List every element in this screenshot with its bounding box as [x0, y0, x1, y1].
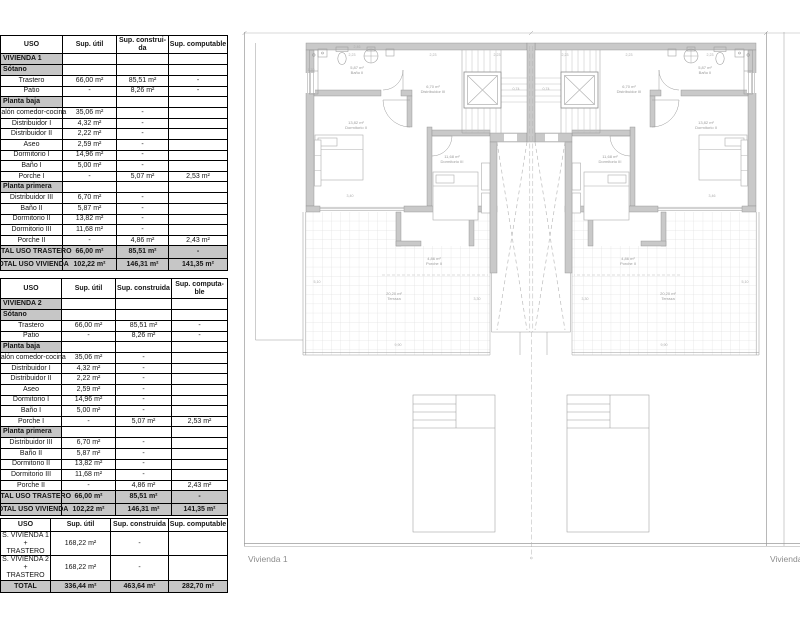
- table-row: Dormitorio III11,68 m²-: [1, 225, 228, 236]
- pool-vivienda-1: [413, 395, 495, 532]
- table-cell: [172, 459, 228, 470]
- table-cell: [117, 97, 169, 108]
- table-cell: 5,07 m²: [116, 416, 172, 427]
- table-cell: 85,51 m²: [116, 491, 172, 504]
- table-cell: [169, 161, 228, 172]
- table-cell: Patio: [1, 86, 63, 97]
- table-cell: [172, 310, 228, 321]
- table-cell: [169, 203, 228, 214]
- table-cell: [172, 374, 228, 385]
- table-cell: [62, 299, 116, 310]
- table-cell: Salón comedor-cocina: [1, 353, 62, 364]
- room-label: Baño II: [351, 70, 364, 75]
- column-header: Sup. computa- ble: [172, 279, 228, 299]
- table-cell: 6,70 m²: [62, 438, 116, 449]
- table-row: TOTAL USO VIVIENDA102,22 m²146,31 m²141,…: [1, 258, 228, 271]
- table-cell: [172, 395, 228, 406]
- table-cell: Distribuidor III: [1, 193, 63, 204]
- table-row: TOTAL USO VIVIENDA102,22 m²146,31 m²141,…: [1, 503, 228, 516]
- table-cell: 66,00 m²: [62, 321, 116, 332]
- table-cell: Dormitorio III: [1, 225, 63, 236]
- dimension-label: 0,74: [543, 87, 550, 91]
- table-row: Dormitorio II13,82 m²-: [1, 459, 228, 470]
- table-cell: [63, 182, 117, 193]
- table-cell: 5,07 m²: [117, 171, 169, 182]
- table-cell: Baño I: [1, 406, 62, 417]
- wardrobe: [482, 163, 491, 190]
- table-cell: -: [111, 556, 169, 580]
- table-header-row: USOSup. útilSup. construi- daSup. comput…: [1, 36, 228, 54]
- table-row: Porche II-4,86 m²2,43 m²: [1, 480, 228, 491]
- dimension-label: 5,10: [314, 280, 321, 284]
- table-cell: VIVIENDA 2: [1, 299, 62, 310]
- table-cell: 102,22 m²: [62, 503, 116, 516]
- table-cell: 8,26 m²: [117, 86, 169, 97]
- table-cell: [172, 470, 228, 481]
- table-cell: -: [169, 246, 228, 259]
- table-cell: [172, 353, 228, 364]
- table-cell: 11,68 m²: [63, 225, 117, 236]
- table-cell: -: [62, 416, 116, 427]
- table-cell: Baño I: [1, 161, 63, 172]
- table-cell: 282,70 m²: [169, 580, 228, 593]
- table-cell: 4,32 m²: [62, 363, 116, 374]
- dimension-label: 2,23: [494, 53, 501, 57]
- table-row: Trastero66,00 m²85,51 m²-: [1, 321, 228, 332]
- dimension-label: 2,23: [349, 53, 356, 57]
- table-cell: 2,43 m²: [169, 235, 228, 246]
- room-label: Terraza: [661, 296, 675, 301]
- table-cell: [169, 54, 228, 65]
- dimension-label: 2,23: [562, 53, 569, 57]
- doors: [383, 70, 452, 156]
- surfaces-table-totals: USOSup. útilSup. construidaSup. computab…: [0, 518, 228, 593]
- table-cell: 6,70 m²: [63, 193, 117, 204]
- table-cell: [172, 342, 228, 353]
- table-cell: Dormitorio III: [1, 470, 62, 481]
- central-void: [490, 43, 572, 559]
- dimension-label: 3,30: [582, 297, 589, 301]
- table-cell: Dormitorio II: [1, 214, 63, 225]
- table-cell: 5,00 m²: [62, 406, 116, 417]
- table-cell: 102,22 m²: [63, 258, 117, 271]
- table-cell: 85,51 m²: [117, 76, 169, 87]
- table-row: Aseo2,59 m²-: [1, 139, 228, 150]
- table-cell: 2,59 m²: [63, 139, 117, 150]
- table-row: Dormitorio I14,96 m²-: [1, 150, 228, 161]
- dimension-label: 2,23: [626, 53, 633, 57]
- table-row: Distribuidor I4,32 m²-: [1, 363, 228, 374]
- dimension-label: 2,46: [354, 45, 361, 49]
- table-cell: 336,44 m²: [51, 580, 111, 593]
- table-cell: 8,26 m²: [116, 331, 172, 342]
- table-row: VIVIENDA 2: [1, 299, 228, 310]
- table-cell: Baño II: [1, 203, 63, 214]
- table-cell: Distribuidor I: [1, 363, 62, 374]
- drawing-sheet: USOSup. útilSup. construi- daSup. comput…: [0, 0, 800, 640]
- table-cell: [169, 65, 228, 76]
- table-row: Dormitorio I14,96 m²-: [1, 395, 228, 406]
- table-cell: 463,64 m²: [111, 580, 169, 593]
- table-cell: Trastero: [1, 76, 63, 87]
- table-cell: Dormitorio I: [1, 395, 62, 406]
- table-cell: Aseo: [1, 384, 62, 395]
- room-label: Dormitorio II: [695, 125, 717, 130]
- table-cell: Baño II: [1, 448, 62, 459]
- table-cell: -: [117, 129, 169, 140]
- surfaces-table-vivienda-2: USOSup. útilSup. construidaSup. computa-…: [0, 278, 228, 516]
- table-cell: 168,22 m²: [51, 532, 111, 556]
- table-row: Planta primera: [1, 182, 228, 193]
- dimension-label: 0,74: [513, 87, 520, 91]
- dimension-label: 2,23: [707, 53, 714, 57]
- table-cell: -: [117, 214, 169, 225]
- table-cell: [117, 182, 169, 193]
- table-cell: 11,68 m²: [62, 470, 116, 481]
- table-cell: -: [117, 150, 169, 161]
- table-cell: Aseo: [1, 139, 63, 150]
- column-header: Sup. construi- da: [117, 36, 169, 54]
- dimension-label: 9,90: [661, 343, 668, 347]
- column-header: Sup. útil: [63, 36, 117, 54]
- table-cell: TOTAL USO VIVIENDA: [1, 258, 63, 271]
- table-cell: [62, 310, 116, 321]
- table-row: Distribuidor II2,22 m²-: [1, 129, 228, 140]
- table-cell: -: [169, 86, 228, 97]
- table-cell: [63, 97, 117, 108]
- table-cell: [116, 342, 172, 353]
- table-row: Porche II-4,86 m²2,43 m²: [1, 235, 228, 246]
- table-cell: [169, 532, 228, 556]
- table-cell: [172, 299, 228, 310]
- table-cell: [62, 427, 116, 438]
- table-cell: S. VIVIENDA 2 + TRASTERO: [1, 556, 51, 580]
- table-row: Porche I-5,07 m²2,53 m²: [1, 171, 228, 182]
- table-cell: [169, 225, 228, 236]
- table-cell: 85,51 m²: [117, 246, 169, 259]
- column-header: Sup. útil: [51, 519, 111, 532]
- table-cell: TOTAL USO TRASTERO: [1, 246, 63, 259]
- table-cell: -: [117, 139, 169, 150]
- table-cell: -: [117, 203, 169, 214]
- table-cell: 4,86 m²: [117, 235, 169, 246]
- table-cell: -: [169, 76, 228, 87]
- table-cell: [169, 193, 228, 204]
- table-cell: [169, 139, 228, 150]
- table-cell: [172, 406, 228, 417]
- column-header: Sup. útil: [62, 279, 116, 299]
- table-row: Planta baja: [1, 342, 228, 353]
- table-cell: TOTAL: [1, 580, 51, 593]
- room-label: Dormitorio II: [345, 125, 367, 130]
- table-cell: Porche I: [1, 171, 63, 182]
- table-cell: Porche II: [1, 235, 63, 246]
- table-row: Distribuidor II2,22 m²-: [1, 374, 228, 385]
- table-cell: Planta primera: [1, 182, 63, 193]
- pool-vivienda-2: [567, 395, 649, 532]
- table-cell: 5,87 m²: [62, 448, 116, 459]
- table-cell: -: [172, 331, 228, 342]
- column-header: Sup. computable: [169, 519, 228, 532]
- table-cell: [169, 97, 228, 108]
- table-cell: 5,87 m²: [63, 203, 117, 214]
- column-header: USO: [1, 519, 51, 532]
- dimension-label: 3,40: [347, 194, 354, 198]
- table-cell: -: [116, 384, 172, 395]
- table-cell: 2,22 m²: [62, 374, 116, 385]
- table-cell: [62, 342, 116, 353]
- table-row: S. VIVIENDA 1 + TRASTERO168,22 m²-: [1, 532, 228, 556]
- table-cell: 4,86 m²: [116, 480, 172, 491]
- column-header: Sup. construida: [111, 519, 169, 532]
- table-cell: [63, 54, 117, 65]
- table-cell: 85,51 m²: [116, 321, 172, 332]
- table-row: TOTAL USO TRASTERO66,00 m²85,51 m²-: [1, 491, 228, 504]
- table-cell: 13,82 m²: [63, 214, 117, 225]
- room-label: Porche II: [426, 261, 442, 266]
- table-cell: -: [62, 480, 116, 491]
- table-cell: -: [63, 171, 117, 182]
- column-header: USO: [1, 279, 62, 299]
- table-cell: Planta primera: [1, 427, 62, 438]
- table-cell: 66,00 m²: [63, 76, 117, 87]
- table-cell: S. VIVIENDA 1 + TRASTERO: [1, 532, 51, 556]
- table-cell: 2,59 m²: [62, 384, 116, 395]
- table-cell: -: [116, 374, 172, 385]
- table-row: Distribuidor III6,70 m²-: [1, 438, 228, 449]
- table-cell: 4,32 m²: [63, 118, 117, 129]
- table-cell: -: [117, 193, 169, 204]
- table-cell: [169, 150, 228, 161]
- table-cell: Distribuidor I: [1, 118, 63, 129]
- table-row: Salón comedor-cocina35,06 m²-: [1, 353, 228, 364]
- table-cell: -: [116, 448, 172, 459]
- table-row: Aseo2,59 m²-: [1, 384, 228, 395]
- table-row: Dormitorio II13,82 m²-: [1, 214, 228, 225]
- table-cell: -: [63, 235, 117, 246]
- table-row: Baño I5,00 m²-: [1, 406, 228, 417]
- table-cell: Distribuidor II: [1, 374, 62, 385]
- table-cell: -: [116, 363, 172, 374]
- unit-label: Vivienda 1: [248, 554, 288, 564]
- room-label: Terraza: [387, 296, 401, 301]
- wardrobe: [315, 140, 322, 186]
- room-label: Dormitorio III: [441, 159, 464, 164]
- table-cell: -: [116, 459, 172, 470]
- table-row: Patio-8,26 m²-: [1, 331, 228, 342]
- table-row: Baño I5,00 m²-: [1, 161, 228, 172]
- table-cell: Planta baja: [1, 342, 62, 353]
- table-row: Sótano: [1, 65, 228, 76]
- table-cell: 2,53 m²: [169, 171, 228, 182]
- table-header-row: USOSup. útilSup. construidaSup. computab…: [1, 519, 228, 532]
- room-label: Baño II: [699, 70, 712, 75]
- room-label: Dormitorio III: [599, 159, 622, 164]
- table-cell: 14,96 m²: [62, 395, 116, 406]
- void-cross-marks: [497, 142, 565, 330]
- table-cell: 13,82 m²: [62, 459, 116, 470]
- table-row: Patio-8,26 m²-: [1, 86, 228, 97]
- table-cell: Salón comedor-cocina: [1, 108, 63, 119]
- table-cell: 141,35 m²: [169, 258, 228, 271]
- table-row: Salón comedor-cocina35,06 m²-: [1, 108, 228, 119]
- table-cell: [116, 299, 172, 310]
- table-cell: [172, 448, 228, 459]
- dimension-label: 5,10: [742, 280, 749, 284]
- table-row: Porche I-5,07 m²2,53 m²: [1, 416, 228, 427]
- dimension-label: 3,30: [474, 297, 481, 301]
- table-cell: -: [172, 491, 228, 504]
- table-cell: Planta baja: [1, 97, 63, 108]
- table-cell: [169, 214, 228, 225]
- table-cell: 146,31 m²: [116, 503, 172, 516]
- table-cell: 2,43 m²: [172, 480, 228, 491]
- table-cell: Sótano: [1, 65, 63, 76]
- table-cell: Porche I: [1, 416, 62, 427]
- table-row: Distribuidor I4,32 m²-: [1, 118, 228, 129]
- dimension-label: 9,90: [395, 343, 402, 347]
- unit-label: Vivienda 2: [770, 554, 800, 564]
- dimension-label: 3,46: [709, 194, 716, 198]
- table-cell: -: [116, 438, 172, 449]
- table-cell: [116, 310, 172, 321]
- table-row: Dormitorio III11,68 m²-: [1, 470, 228, 481]
- table-row: S. VIVIENDA 2 + TRASTERO168,22 m²-: [1, 556, 228, 580]
- table-cell: 146,31 m²: [117, 258, 169, 271]
- table-cell: [169, 129, 228, 140]
- table-cell: 14,96 m²: [63, 150, 117, 161]
- table-cell: 2,22 m²: [63, 129, 117, 140]
- table-cell: 141,35 m²: [172, 503, 228, 516]
- table-cell: Patio: [1, 331, 62, 342]
- table-cell: [169, 108, 228, 119]
- sink-small-icon: [318, 49, 327, 57]
- table-cell: -: [116, 470, 172, 481]
- table-cell: [117, 65, 169, 76]
- table-row: TOTAL336,44 m²463,64 m²282,70 m²: [1, 580, 228, 593]
- table-cell: Dormitorio I: [1, 150, 63, 161]
- table-row: Trastero66,00 m²85,51 m²-: [1, 76, 228, 87]
- table-cell: Trastero: [1, 321, 62, 332]
- table-cell: -: [117, 118, 169, 129]
- table-row: Planta baja: [1, 97, 228, 108]
- table-row: Sótano: [1, 310, 228, 321]
- dimension-label: 1,70: [308, 68, 315, 72]
- table-cell: -: [63, 86, 117, 97]
- table-cell: -: [117, 108, 169, 119]
- table-cell: [172, 438, 228, 449]
- table-cell: -: [117, 161, 169, 172]
- table-cell: [172, 363, 228, 374]
- room-label: Porche II: [620, 261, 636, 266]
- table-cell: Dormitorio II: [1, 459, 62, 470]
- table-row: Baño II5,87 m²-: [1, 448, 228, 459]
- column-header: Sup. computable: [169, 36, 228, 54]
- table-cell: -: [116, 406, 172, 417]
- table-cell: -: [116, 395, 172, 406]
- table-cell: [116, 427, 172, 438]
- table-cell: Distribuidor II: [1, 129, 63, 140]
- table-row: Distribuidor III6,70 m²-: [1, 193, 228, 204]
- table-cell: -: [62, 331, 116, 342]
- column-header: Sup. construida: [116, 279, 172, 299]
- table-cell: [117, 54, 169, 65]
- table-cell: 35,06 m²: [62, 353, 116, 364]
- toilet-icon: [338, 53, 346, 65]
- table-cell: 168,22 m²: [51, 556, 111, 580]
- table-cell: [63, 65, 117, 76]
- table-cell: 2,53 m²: [172, 416, 228, 427]
- table-row: VIVIENDA 1: [1, 54, 228, 65]
- table-cell: 35,06 m²: [63, 108, 117, 119]
- floor-plan: 5,87 m²Baño II6,70 m²Distribuidor III13,…: [232, 28, 800, 640]
- table-cell: -: [111, 532, 169, 556]
- table-cell: 5,00 m²: [63, 161, 117, 172]
- shaft: [464, 72, 501, 108]
- table-row: TOTAL USO TRASTERO66,00 m²85,51 m²-: [1, 246, 228, 259]
- dimension-label: 2,23: [430, 53, 437, 57]
- table-cell: -: [116, 353, 172, 364]
- table-row: Planta primera: [1, 427, 228, 438]
- table-cell: Distribuidor III: [1, 438, 62, 449]
- table-cell: Porche II: [1, 480, 62, 491]
- table-cell: -: [172, 321, 228, 332]
- table-cell: [172, 427, 228, 438]
- table-cell: TOTAL USO VIVIENDA: [1, 503, 62, 516]
- table-cell: -: [117, 225, 169, 236]
- surfaces-table-vivienda-1: USOSup. útilSup. construi- daSup. comput…: [0, 35, 228, 271]
- table-cell: Sótano: [1, 310, 62, 321]
- column-header: USO: [1, 36, 63, 54]
- table-cell: [169, 118, 228, 129]
- table-header-row: USOSup. útilSup. construidaSup. computa-…: [1, 279, 228, 299]
- room-label: Distribuidor III: [421, 89, 446, 94]
- table-cell: [169, 556, 228, 580]
- table-cell: [172, 384, 228, 395]
- table-row: Baño II5,87 m²-: [1, 203, 228, 214]
- table-cell: VIVIENDA 1: [1, 54, 63, 65]
- table-cell: [169, 182, 228, 193]
- room-label: Distribuidor III: [617, 89, 642, 94]
- table-cell: TOTAL USO TRASTERO: [1, 491, 62, 504]
